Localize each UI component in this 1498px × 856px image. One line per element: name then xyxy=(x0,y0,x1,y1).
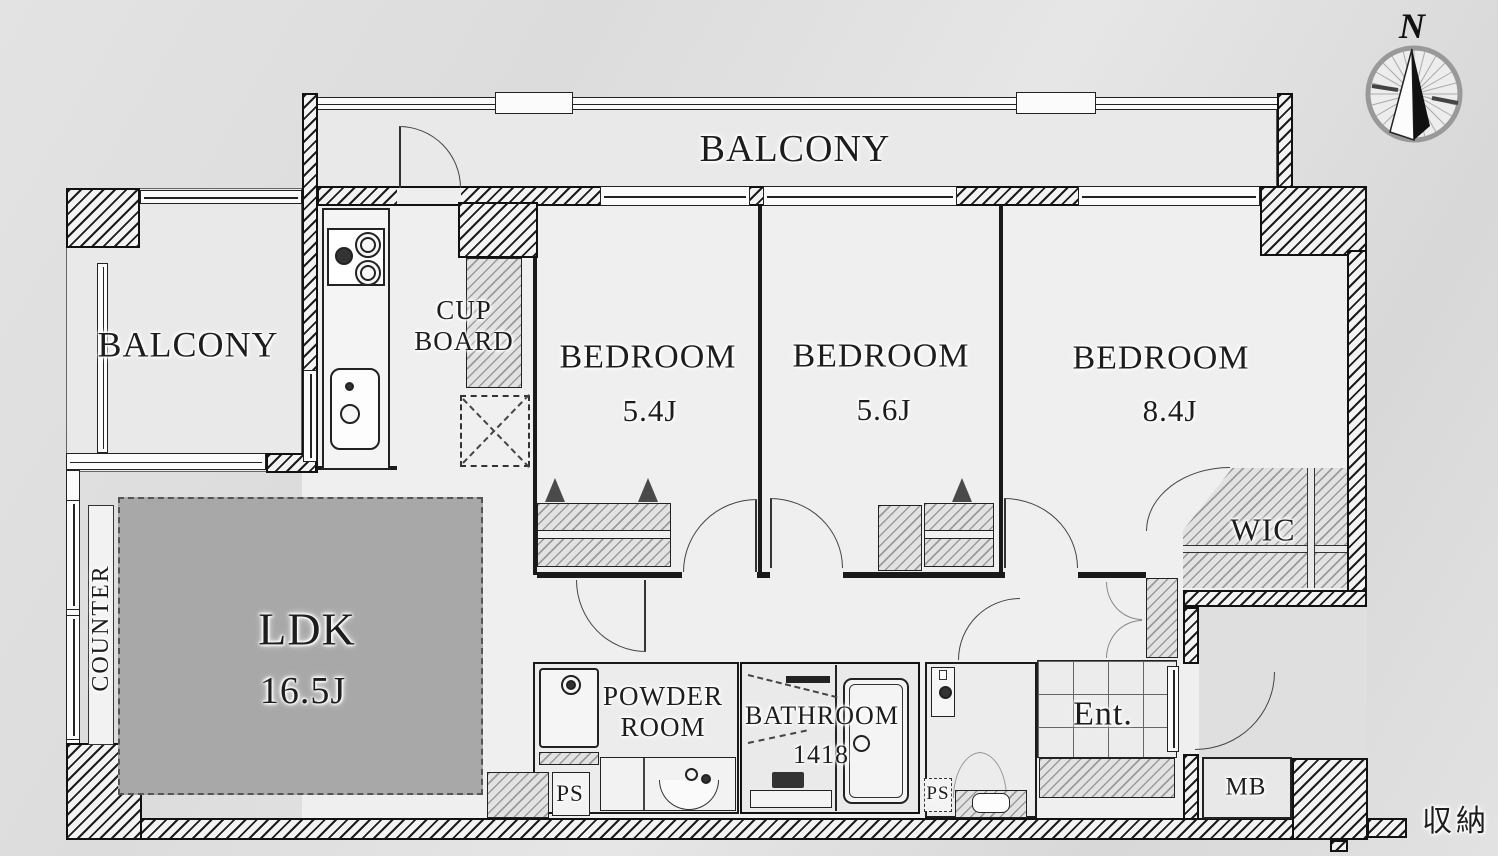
stove-burner-small xyxy=(335,247,353,265)
vanity-knob xyxy=(701,774,711,784)
bedroom-mid-label: BEDROOM xyxy=(792,336,969,375)
ldk-size: 16.5J xyxy=(260,670,346,714)
toilet-bowl xyxy=(972,793,1010,813)
refrigerator-cross-2 xyxy=(462,394,530,464)
ps-right-label: PS xyxy=(926,783,949,805)
wall-bedroom-divider-1 xyxy=(758,205,762,575)
washer-valve-inner xyxy=(566,680,576,690)
balcony-railing-post-2 xyxy=(1016,92,1096,114)
wic-label: WIC xyxy=(1230,512,1295,549)
floor-plan: BALCONY BALCONY CUP BOARD BEDROOM 5.4J B… xyxy=(0,0,1498,856)
cupboard-label-line2: BOARD xyxy=(414,326,514,356)
window-bedroom-small xyxy=(600,186,750,206)
wall-balcony-right xyxy=(1277,93,1293,190)
powder-room-line1: POWDER xyxy=(603,681,723,711)
vanity-basin xyxy=(659,780,719,810)
balcony-top-railing xyxy=(305,97,1290,110)
shaft-between-closets xyxy=(878,505,922,571)
balcony-railing-post-1 xyxy=(495,92,573,114)
closet-bedroom-small xyxy=(537,503,671,567)
window-balcony-ldk xyxy=(303,370,317,462)
window-ldk-left-2 xyxy=(66,615,80,740)
wall-entry-right-upper xyxy=(1183,607,1199,664)
window-balcony-left-top xyxy=(140,190,302,204)
washer-pan xyxy=(539,752,599,765)
wall-block-bottom-right xyxy=(1292,758,1368,840)
compass-rose: N xyxy=(1352,2,1482,147)
balcony-left-label: BALCONY xyxy=(97,324,278,365)
shower-bar xyxy=(786,676,830,683)
north-label: N xyxy=(1398,6,1427,46)
bedroom-small-label: BEDROOM xyxy=(559,337,736,376)
cupboard-label-line1: CUP xyxy=(436,295,492,325)
ldk-label: LDK xyxy=(258,604,356,657)
bathroom-label: BATHROOM xyxy=(745,701,899,731)
wall-corridor-3 xyxy=(843,572,1005,578)
sink-faucet xyxy=(340,404,360,424)
wall-corridor-1 xyxy=(537,572,682,578)
window-bedroom-mid xyxy=(763,186,957,206)
balcony-top-label: BALCONY xyxy=(700,128,891,172)
meter-box-label: MB xyxy=(1226,774,1267,803)
stove-burner-1-inner xyxy=(360,237,376,253)
bedroom-mid-size: 5.6J xyxy=(857,392,912,428)
toilet-hand-basin xyxy=(931,667,955,717)
entrance-label: Ent. xyxy=(1073,694,1133,733)
powder-room-label: POWDER ROOM xyxy=(603,681,723,743)
closet-rail xyxy=(925,530,993,539)
wall-right xyxy=(1347,250,1367,595)
wall-bedroom-divider-2 xyxy=(999,205,1003,575)
storage-label: 収納 xyxy=(1422,805,1490,840)
cupboard-label: CUP BOARD xyxy=(414,295,514,357)
window-bedroom-large xyxy=(1078,186,1260,206)
bathtub-drain-knob xyxy=(853,735,870,752)
bathroom-divider xyxy=(835,665,837,811)
wall-wic-bottom xyxy=(1183,590,1367,607)
vanity-divider xyxy=(643,758,645,810)
wall-entry-right-lower xyxy=(1183,754,1199,820)
wall-corridor-2 xyxy=(757,572,770,578)
window-ldk-left-1 xyxy=(66,500,80,610)
vanity-faucet xyxy=(685,768,698,781)
ps-shaft-left-hatch xyxy=(487,772,549,818)
wall-pillar-top-left xyxy=(66,188,140,248)
refrigerator-cross-1 xyxy=(462,398,530,468)
refrigerator-space xyxy=(460,395,530,467)
stove-burner-2-inner xyxy=(360,265,376,281)
wall-cupboard-top xyxy=(458,202,538,258)
wall-bottom-band xyxy=(140,818,1333,840)
kitchen-sink xyxy=(330,368,380,450)
hanger-icon-1 xyxy=(545,478,565,502)
washing-machine xyxy=(539,668,599,748)
bedroom-small-size: 5.4J xyxy=(623,393,678,429)
wall-leg-bottom-right xyxy=(1330,840,1348,852)
counter-label: COUNTER xyxy=(88,564,116,691)
wic-divider-line xyxy=(1307,468,1315,588)
bathtub xyxy=(843,678,909,804)
railing-balcony-bottom xyxy=(66,453,266,470)
sink-drain xyxy=(345,382,354,391)
hanger-icon-2 xyxy=(638,478,658,502)
bathroom-size: 1418 xyxy=(793,740,849,770)
hanger-icon-3 xyxy=(952,478,972,502)
stove xyxy=(327,228,385,286)
front-door xyxy=(1167,666,1179,752)
wall-step-bottom-right xyxy=(1367,818,1407,838)
bath-counter xyxy=(750,790,832,808)
basin-drain xyxy=(939,686,952,699)
basin-tap xyxy=(939,670,947,680)
wall-corridor-4 xyxy=(1078,572,1146,578)
bath-faucet-fixture xyxy=(772,772,804,788)
powder-room-line2: ROOM xyxy=(620,712,705,742)
bedroom-large-size: 8.4J xyxy=(1143,393,1198,429)
closet-rail xyxy=(538,530,670,539)
ps-left-label: PS xyxy=(556,781,584,807)
wall-corner-top-right xyxy=(1260,186,1367,256)
vanity-counter xyxy=(600,757,736,811)
door-gap-kitchen xyxy=(397,188,461,204)
entrance-step xyxy=(1039,758,1175,798)
closet-bedroom-mid xyxy=(924,503,994,567)
bedroom-large-label: BEDROOM xyxy=(1072,338,1249,377)
shoe-cabinet xyxy=(1146,578,1178,658)
